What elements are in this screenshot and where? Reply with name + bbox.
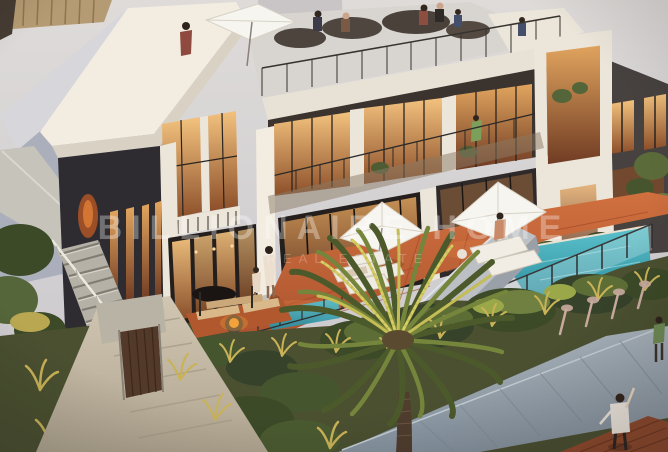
scene — [0, 0, 668, 452]
vignette — [0, 0, 668, 452]
render-image: BILLIONAIRE HOME REAL ESTATE — [0, 0, 668, 452]
